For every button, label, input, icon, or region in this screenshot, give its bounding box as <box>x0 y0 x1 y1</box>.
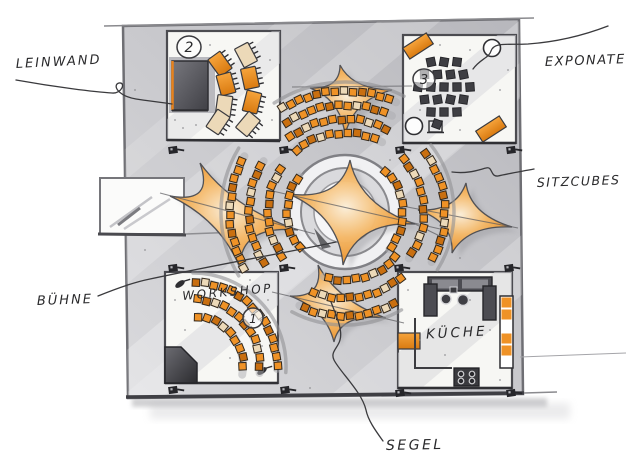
exhibit-cube <box>452 57 461 66</box>
speckle-dot <box>469 49 471 51</box>
kitchen-stool <box>441 294 451 304</box>
speckle-dot <box>229 357 231 359</box>
seat-cube <box>372 305 381 314</box>
exhibit-cube <box>420 95 429 104</box>
seat-cube <box>228 183 237 192</box>
seat-cube <box>346 311 354 319</box>
seat-cube <box>325 130 334 139</box>
seat-cube <box>344 102 352 110</box>
speckle-dot <box>299 149 301 151</box>
seat-cube <box>347 115 354 122</box>
seat-cube <box>251 335 260 344</box>
seat-cube <box>226 220 234 228</box>
seat-cube <box>266 200 274 208</box>
label-segel: SEGEL <box>386 437 444 454</box>
speckle-dot <box>249 279 251 281</box>
speckle-dot <box>195 124 197 126</box>
seat-cube <box>340 87 347 94</box>
kitchen-sink-fixture <box>450 287 457 293</box>
kitchen-stool <box>458 295 469 306</box>
sketch-canvas: 2 3 1 WORKSHOP KÜCHE LEINWAND EXPONATE S… <box>0 0 626 475</box>
speckle-dot <box>309 387 311 389</box>
speckle-dot <box>174 299 176 301</box>
exhibit-cube <box>466 83 475 92</box>
seat-cube <box>440 228 449 237</box>
label-leinwand: LEINWAND <box>15 53 102 72</box>
seat-cube <box>325 102 334 111</box>
seat-cube <box>398 217 406 225</box>
seat-cube <box>266 191 274 199</box>
seat-cube <box>334 277 342 285</box>
seat-cube <box>331 88 339 96</box>
seat-cube <box>245 224 254 233</box>
seat-cube <box>272 352 281 361</box>
seat-cube <box>227 211 234 218</box>
room-edge-dark <box>167 140 280 141</box>
seat-cube <box>367 89 376 98</box>
seat-cube <box>360 273 369 282</box>
building-shadow-soft <box>150 403 570 419</box>
exhibit-cube <box>453 108 462 117</box>
seat-cube <box>419 196 428 205</box>
seat-cube <box>324 273 333 282</box>
seat-cube <box>244 206 252 214</box>
floorplan-sketch: 2 3 1 WORKSHOP KÜCHE LEINWAND EXPONATE S… <box>0 0 626 475</box>
seat-cube <box>353 101 361 109</box>
room-number-3: 3 <box>420 73 428 88</box>
room-number-1: 1 <box>249 312 257 326</box>
guide-line-right <box>520 353 626 357</box>
seat-cube <box>335 101 342 108</box>
seat-cube <box>361 132 370 141</box>
speckle-dot <box>499 89 501 91</box>
speckle-dot <box>174 119 176 121</box>
exhibit-cube <box>427 108 436 117</box>
seat-cube <box>419 205 427 213</box>
seat-cube <box>355 293 364 302</box>
label-buehne: BÜHNE <box>37 290 94 309</box>
seat-cube <box>318 309 327 318</box>
seat-cube <box>239 362 247 370</box>
seat-cube <box>343 276 351 284</box>
bottom-edge-extension <box>524 392 557 393</box>
exhibit-cube <box>459 95 469 105</box>
seat-cube <box>349 88 357 96</box>
seat-cube <box>328 115 337 124</box>
kitchen-counter-wing <box>483 286 496 320</box>
seat-cube <box>234 166 243 175</box>
seat-cube <box>370 105 379 114</box>
speckle-dot <box>184 329 186 331</box>
seat-cube <box>265 227 274 236</box>
seat-cube <box>239 353 248 362</box>
seat-cube <box>337 294 345 302</box>
speckle-dot <box>209 44 211 46</box>
exhibit-cube <box>433 95 443 105</box>
exhibit-plinth-circle <box>406 118 423 135</box>
seat-cube <box>358 88 366 96</box>
seat-cube <box>246 215 254 223</box>
seat-cube <box>344 129 352 137</box>
exhibit-cube <box>446 95 456 105</box>
seat-cube <box>253 344 262 353</box>
seat-cube <box>338 116 346 124</box>
seat-cube <box>285 191 294 200</box>
seat-cube <box>362 102 371 111</box>
room-number-2: 2 <box>185 40 194 56</box>
seat-cube <box>201 278 209 286</box>
seat-cube <box>192 279 200 287</box>
seat-cube <box>274 362 282 370</box>
seat-cube <box>318 290 327 299</box>
speckle-dot <box>407 289 409 291</box>
label-sitzcubes: SITZCUBES <box>537 172 621 190</box>
seat-cube <box>438 181 447 190</box>
seat-cube <box>399 199 407 207</box>
speckle-dot <box>459 129 461 131</box>
seat-cube <box>440 210 448 218</box>
seat-cube <box>226 202 234 210</box>
seat-cube <box>248 178 257 187</box>
seat-cube <box>284 218 292 226</box>
speckle-dot <box>389 159 391 161</box>
speckle-dot <box>271 119 273 121</box>
seat-cube <box>346 293 354 301</box>
seat-cube <box>327 293 336 302</box>
seat-cube <box>353 129 361 137</box>
speckle-dot <box>182 127 184 129</box>
speckle-dot <box>439 44 441 46</box>
seat-cube <box>356 115 365 124</box>
seat-cube <box>285 227 294 236</box>
kitchen-counter-wing <box>424 284 437 316</box>
seat-cube <box>363 290 372 299</box>
seat-cube <box>321 88 329 96</box>
seat-cube <box>310 118 319 127</box>
seat-cube <box>194 313 202 321</box>
seat-cube <box>229 174 238 183</box>
label-exponate: EXPONATE <box>545 52 626 70</box>
seat-cube <box>441 201 448 208</box>
kitchen-stove <box>454 368 479 386</box>
speckle-dot <box>459 257 461 259</box>
seat-cube <box>283 210 290 217</box>
seat-cube <box>246 197 255 206</box>
seat-cube <box>416 187 425 196</box>
kitchen-side-cabinet <box>398 333 420 349</box>
seat-cube <box>284 200 292 208</box>
speckle-dot <box>419 339 421 341</box>
seat-cube <box>352 274 360 282</box>
projection-screen <box>172 61 208 110</box>
seat-cube <box>319 118 328 127</box>
seat-cube <box>316 102 325 111</box>
speckle-dot <box>144 249 146 251</box>
seat-cube <box>255 363 263 371</box>
seat-cube <box>355 312 364 321</box>
seat-cube <box>228 229 236 237</box>
exhibit-cube <box>446 70 455 79</box>
exhibit-cube <box>453 83 462 92</box>
exhibit-cube <box>440 108 448 116</box>
seat-cube <box>420 215 427 222</box>
seat-cube <box>440 219 448 227</box>
seminar-room-contents <box>169 57 215 113</box>
speckle-dot <box>499 379 501 381</box>
seat-cube <box>370 134 379 143</box>
seat-cube <box>248 233 257 242</box>
seat-cube <box>256 353 264 361</box>
seat-cube <box>439 191 448 200</box>
seat-cube <box>419 223 428 232</box>
speckle-dot <box>269 59 271 61</box>
seat-cube <box>312 90 321 99</box>
seat-cube <box>396 226 405 235</box>
seat-cube <box>376 92 385 101</box>
seat-cube <box>384 94 393 103</box>
speckle-dot <box>489 329 491 331</box>
seat-cube <box>309 307 318 316</box>
seat-cube <box>269 343 278 352</box>
seat-cube <box>398 209 405 216</box>
speckle-dot <box>134 89 136 91</box>
speckle-dot <box>444 354 446 356</box>
seat-cube <box>265 218 273 226</box>
seat-cube <box>364 118 373 127</box>
exhibit-cube <box>459 70 469 80</box>
annex-base-line <box>98 234 186 235</box>
exhibit-cube <box>440 83 449 92</box>
speckle-dot <box>419 109 421 111</box>
seat-cube <box>436 236 445 245</box>
seat-cube <box>247 188 256 197</box>
speckle-dot <box>469 299 471 301</box>
speckle-dot <box>507 69 509 71</box>
exhibit-cube <box>426 57 436 67</box>
seat-cube <box>228 193 236 201</box>
exhibit-cube <box>439 57 449 67</box>
seat-cube <box>395 190 404 199</box>
seat-cube <box>363 309 372 318</box>
seat-cube <box>264 209 272 217</box>
seat-cube <box>335 130 343 138</box>
seat-cube <box>316 133 325 142</box>
speckle-dot <box>261 345 263 347</box>
speckle-dot <box>267 299 269 301</box>
